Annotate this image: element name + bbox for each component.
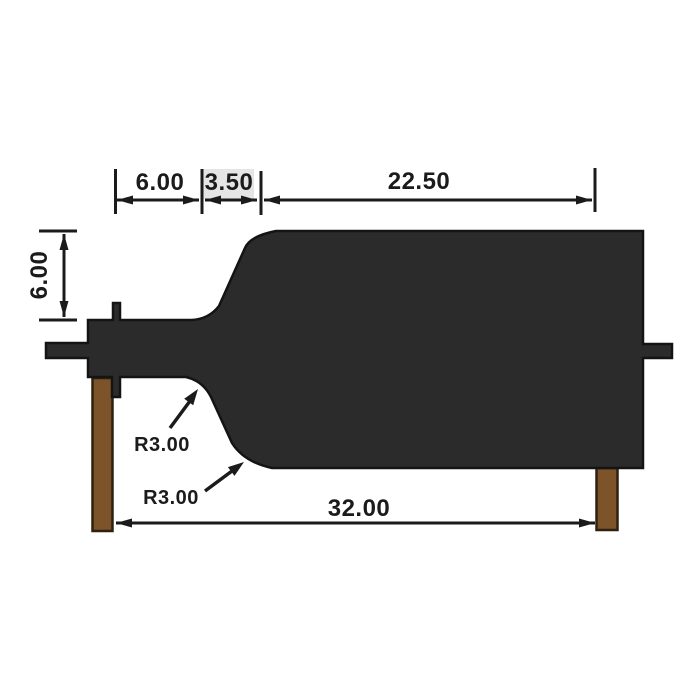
right-leg <box>597 468 618 530</box>
dim-label-top-3-5: 3.50 <box>205 169 254 196</box>
dim-label-bottom-32: 32.00 <box>328 495 391 522</box>
dim-label-top-22-5: 22.50 <box>388 168 451 195</box>
radius-label-upper: R3.00 <box>134 434 190 456</box>
dim-label-top-6: 6.00 <box>136 169 185 196</box>
technical-drawing-canvas: 6.00 3.50 22.50 6.00 32.00 R3.00 R3.00 <box>0 0 700 700</box>
arrow-right-icon <box>576 196 592 205</box>
dim-label-left-6: 6.00 <box>26 251 53 300</box>
arrow-right-icon <box>579 519 595 528</box>
arrow-right-icon <box>183 196 199 205</box>
part-silhouette <box>46 231 672 468</box>
arrow-left-icon <box>116 519 132 528</box>
arrow-left-icon <box>117 196 133 205</box>
radius-label-lower: R3.00 <box>143 487 199 509</box>
arrow-left-icon <box>264 196 280 205</box>
arrow-up-right-icon <box>184 389 198 405</box>
leader-line-upper-fillet <box>170 401 190 428</box>
leader-line-lower-fillet <box>205 471 232 491</box>
arrow-down-icon <box>60 301 69 317</box>
drawing-svg: 6.00 3.50 22.50 6.00 32.00 R3.00 R3.00 <box>0 0 700 700</box>
arrow-up-icon <box>60 234 69 250</box>
left-leg <box>93 378 113 531</box>
